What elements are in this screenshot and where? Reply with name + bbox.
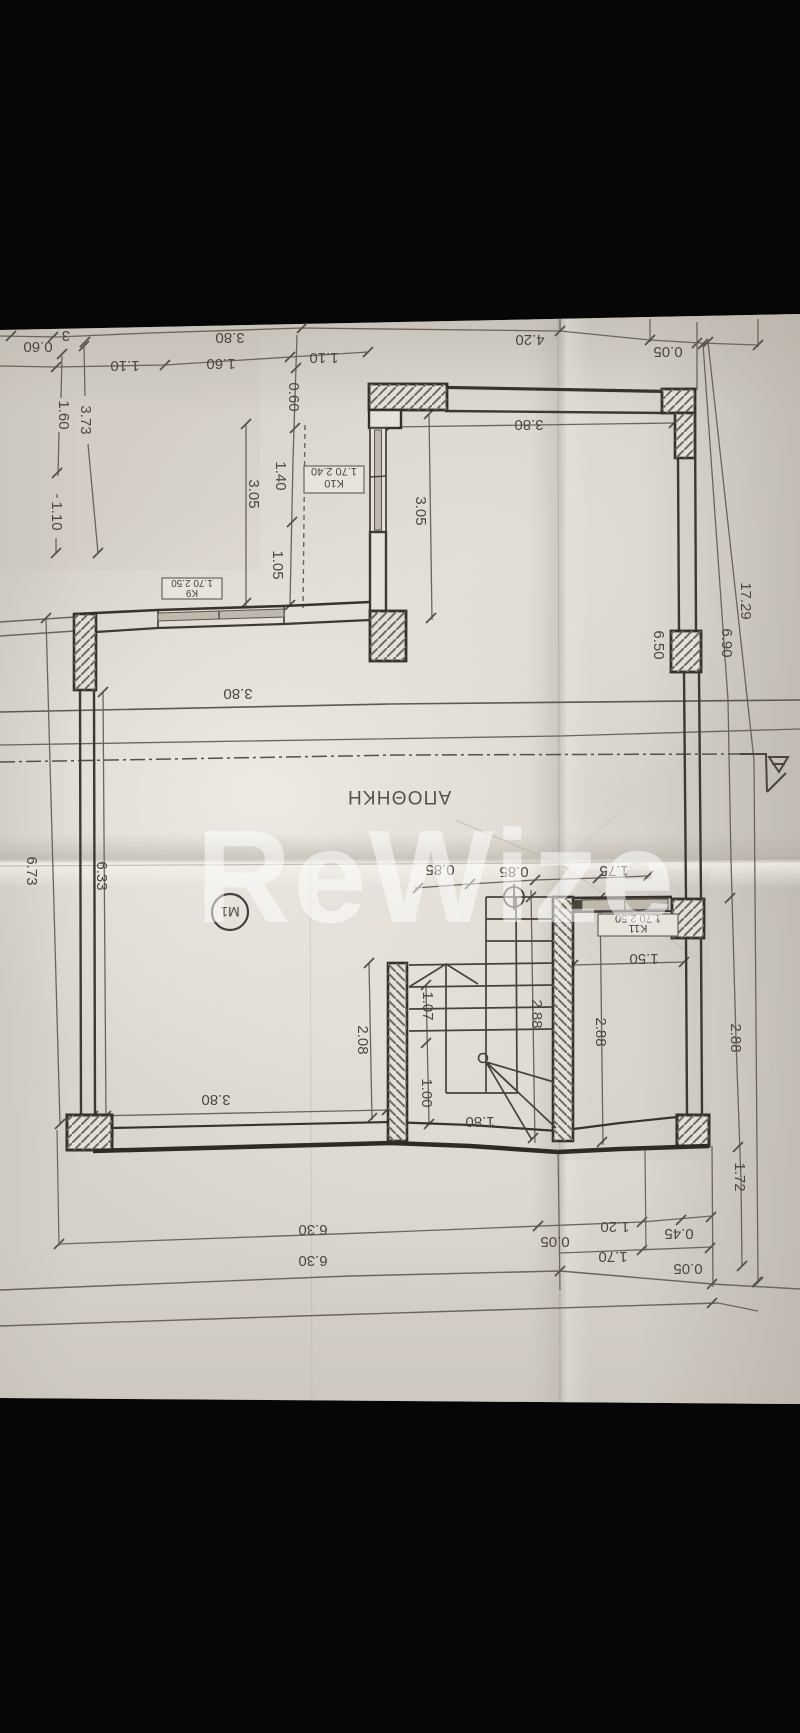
svg-text:0.05: 0.05 [673, 1260, 702, 1277]
svg-text:17.29: 17.29 [737, 582, 754, 620]
svg-text:6.50: 6.50 [650, 630, 667, 659]
svg-text:3.05: 3.05 [245, 479, 262, 508]
svg-text:1.40: 1.40 [272, 461, 289, 490]
svg-text:3.80: 3.80 [514, 416, 543, 433]
svg-text:2.08: 2.08 [354, 1025, 371, 1054]
svg-text:1.70: 1.70 [598, 1248, 627, 1265]
svg-text:0.60: 0.60 [285, 382, 302, 411]
svg-text:0.05: 0.05 [653, 343, 682, 360]
svg-text:ReWize: ReWize [196, 803, 676, 950]
svg-text:1.60: 1.60 [55, 400, 72, 429]
svg-text:3.80: 3.80 [223, 685, 252, 702]
svg-text:1.70 2.40: 1.70 2.40 [311, 465, 357, 477]
svg-text:3.05: 3.05 [412, 496, 429, 525]
svg-text:6.30: 6.30 [298, 1221, 327, 1238]
svg-text:1.70 2.50: 1.70 2.50 [171, 577, 213, 588]
svg-text:6.73: 6.73 [23, 856, 40, 885]
svg-text:1.60: 1.60 [206, 355, 235, 372]
svg-text:K9: K9 [185, 587, 198, 598]
svg-text:1.20: 1.20 [600, 1218, 629, 1235]
svg-text:1.10: 1.10 [110, 357, 139, 374]
svg-text:K10: K10 [324, 477, 344, 489]
svg-text:3.73: 3.73 [77, 405, 94, 434]
svg-text:0.45: 0.45 [664, 1225, 693, 1242]
svg-text:6.90: 6.90 [718, 628, 735, 657]
svg-text:0.60: 0.60 [23, 338, 52, 355]
svg-text:1.05: 1.05 [269, 550, 286, 579]
svg-text:3.80: 3.80 [215, 329, 244, 346]
svg-text:6.33: 6.33 [93, 861, 110, 890]
svg-text:3.80: 3.80 [201, 1091, 230, 1108]
svg-text:0.05: 0.05 [540, 1233, 569, 1250]
svg-text:1.00: 1.00 [418, 1078, 435, 1107]
svg-text:2.88: 2.88 [592, 1017, 609, 1046]
svg-text:1.07: 1.07 [419, 991, 436, 1020]
svg-text:4.20: 4.20 [515, 331, 544, 348]
svg-text:3: 3 [62, 327, 70, 344]
svg-text:1.10: 1.10 [48, 501, 65, 530]
svg-text:6.30: 6.30 [298, 1252, 327, 1269]
svg-text:2.88: 2.88 [727, 1023, 744, 1052]
svg-text:1.10: 1.10 [309, 349, 338, 366]
svg-text:2.88: 2.88 [528, 999, 545, 1028]
svg-text:1.72: 1.72 [731, 1162, 748, 1191]
svg-text:1.50: 1.50 [629, 950, 658, 967]
svg-text:1.80: 1.80 [465, 1113, 494, 1130]
